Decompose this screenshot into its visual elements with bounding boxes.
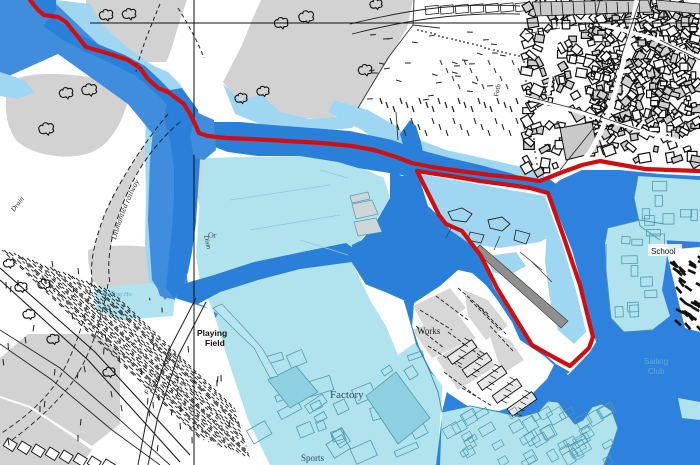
svg-text:Sailing: Sailing [644,357,668,366]
svg-text:Or: Or [208,231,217,240]
svg-text:Bulling Ho: Bulling Ho [103,291,132,298]
svg-text:School: School [651,247,676,256]
svg-text:Field: Field [205,338,225,348]
svg-text:Club: Club [648,367,665,376]
svg-text:Works: Works [417,326,441,336]
svg-text:Factory: Factory [330,389,364,401]
svg-text:Sports: Sports [301,453,325,463]
svg-text:Playing: Playing [197,328,227,338]
